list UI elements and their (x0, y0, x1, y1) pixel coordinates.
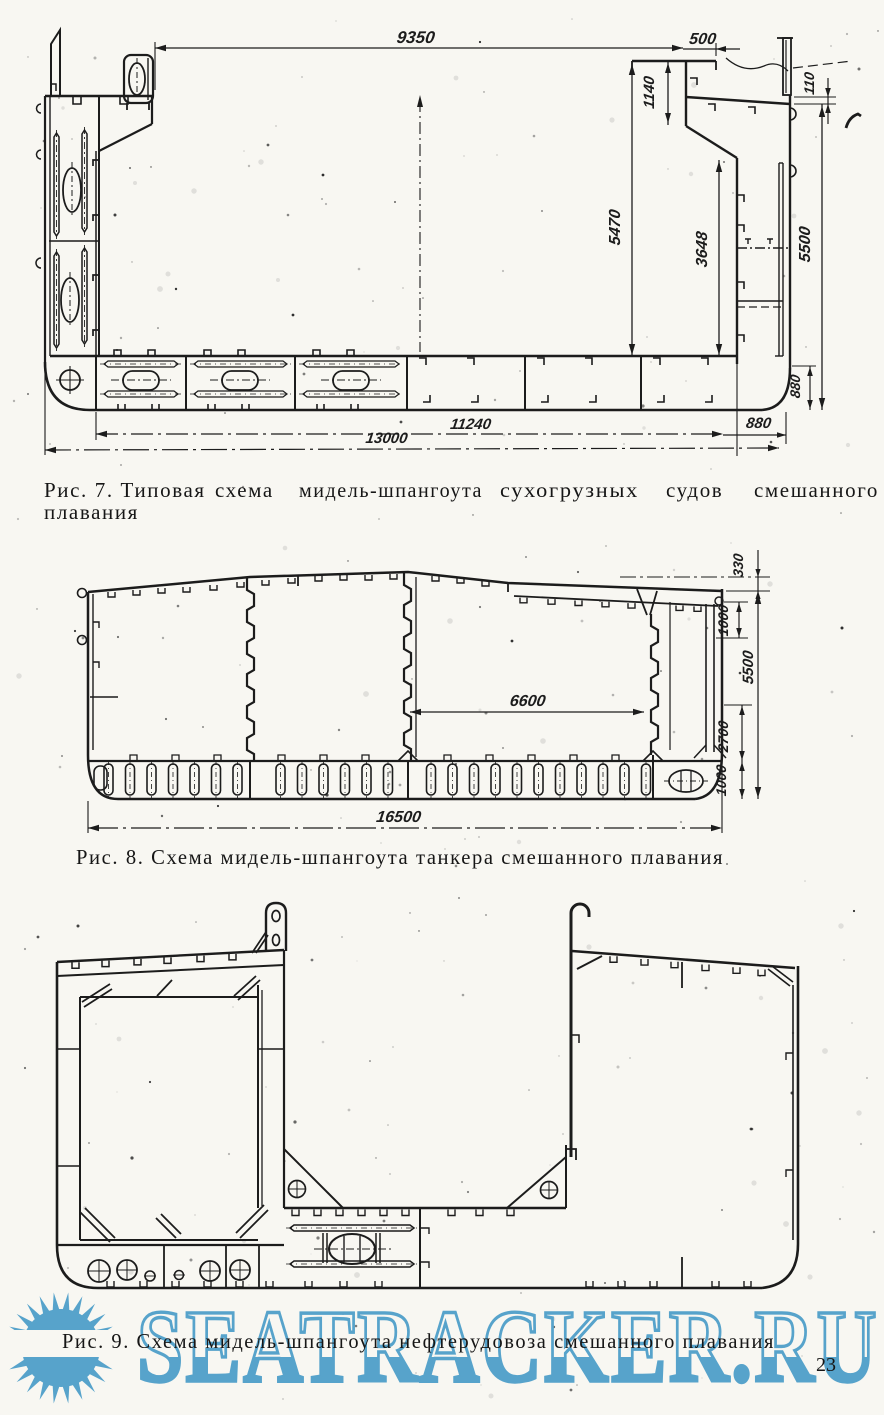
svg-text:330: 330 (730, 552, 746, 578)
svg-text:5470: 5470 (606, 208, 624, 246)
svg-text:Рис. 8. Схема мидель-шпангоута: Рис. 8. Схема мидель-шпангоута танкера с… (76, 845, 724, 869)
svg-text:плавания: плавания (44, 500, 139, 524)
svg-text:9350: 9350 (396, 28, 437, 47)
svg-text:5500: 5500 (740, 649, 757, 685)
svg-text:смешанного: смешанного (754, 478, 879, 502)
svg-text:11240: 11240 (449, 416, 493, 433)
svg-text:Рис. 7. Типовая: Рис. 7. Типовая (44, 478, 206, 502)
svg-text:23: 23 (816, 1354, 836, 1376)
svg-text:2700: 2700 (715, 719, 731, 754)
svg-text:мидель-шпангоута: мидель-шпангоута (299, 478, 483, 502)
svg-text:110: 110 (801, 71, 817, 96)
svg-text:880: 880 (745, 415, 773, 432)
svg-text:500: 500 (688, 30, 717, 48)
svg-text:судов: судов (666, 478, 723, 502)
svg-text:1000: 1000 (715, 603, 731, 637)
svg-text:3648: 3648 (693, 230, 711, 268)
svg-text:схема: схема (215, 478, 274, 502)
svg-text:1140: 1140 (641, 74, 658, 109)
svg-text:16500: 16500 (375, 808, 422, 826)
svg-text:6600: 6600 (509, 692, 547, 710)
svg-text:1000: 1000 (713, 763, 729, 797)
svg-text:сухогрузных: сухогрузных (500, 478, 639, 502)
svg-text:5500: 5500 (796, 225, 814, 263)
svg-text:Рис. 9. Схема мидель-шпангоута: Рис. 9. Схема мидель-шпангоута нефтерудо… (62, 1329, 775, 1353)
svg-text:880: 880 (787, 373, 803, 399)
svg-text:13000: 13000 (365, 430, 410, 447)
